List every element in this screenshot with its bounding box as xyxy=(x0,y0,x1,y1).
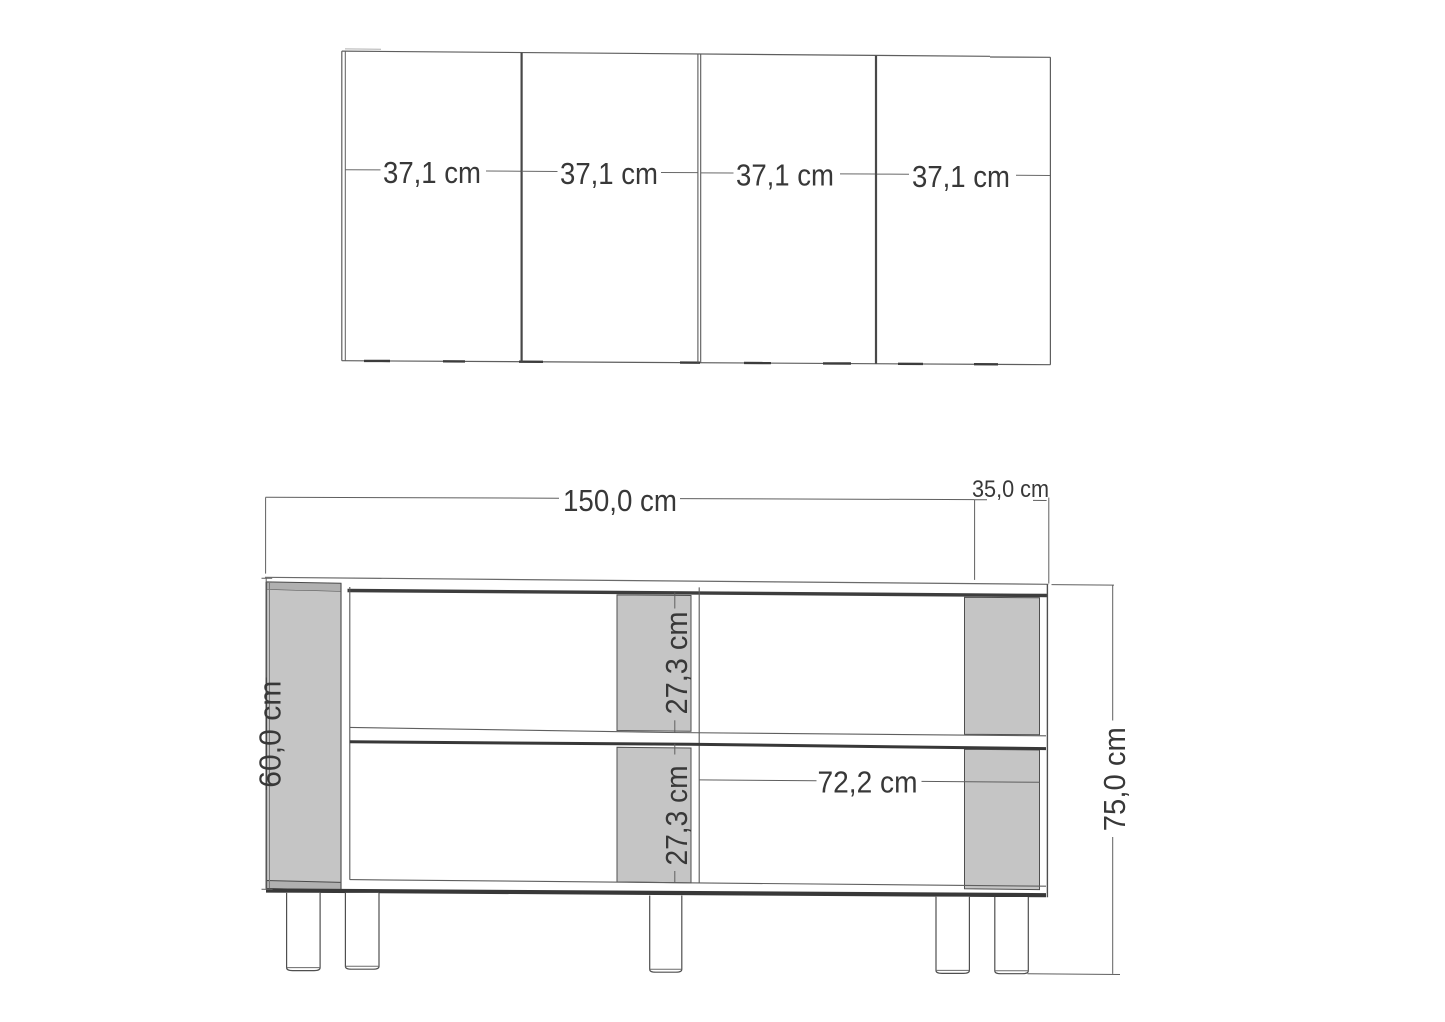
svg-text:37,1 cm: 37,1 cm xyxy=(912,159,1010,194)
svg-text:27,3 cm: 27,3 cm xyxy=(659,766,694,866)
svg-text:37,1 cm: 37,1 cm xyxy=(560,156,658,191)
svg-text:27,3 cm: 27,3 cm xyxy=(659,612,694,715)
svg-text:75,0 cm: 75,0 cm xyxy=(1097,727,1132,831)
svg-text:37,1 cm: 37,1 cm xyxy=(736,158,834,193)
svg-text:37,1 cm: 37,1 cm xyxy=(383,155,481,190)
svg-text:35,0 cm: 35,0 cm xyxy=(972,476,1049,503)
svg-text:60,0 cm: 60,0 cm xyxy=(253,681,288,788)
svg-text:150,0 cm: 150,0 cm xyxy=(563,483,677,518)
svg-text:72,2 cm: 72,2 cm xyxy=(818,764,918,799)
